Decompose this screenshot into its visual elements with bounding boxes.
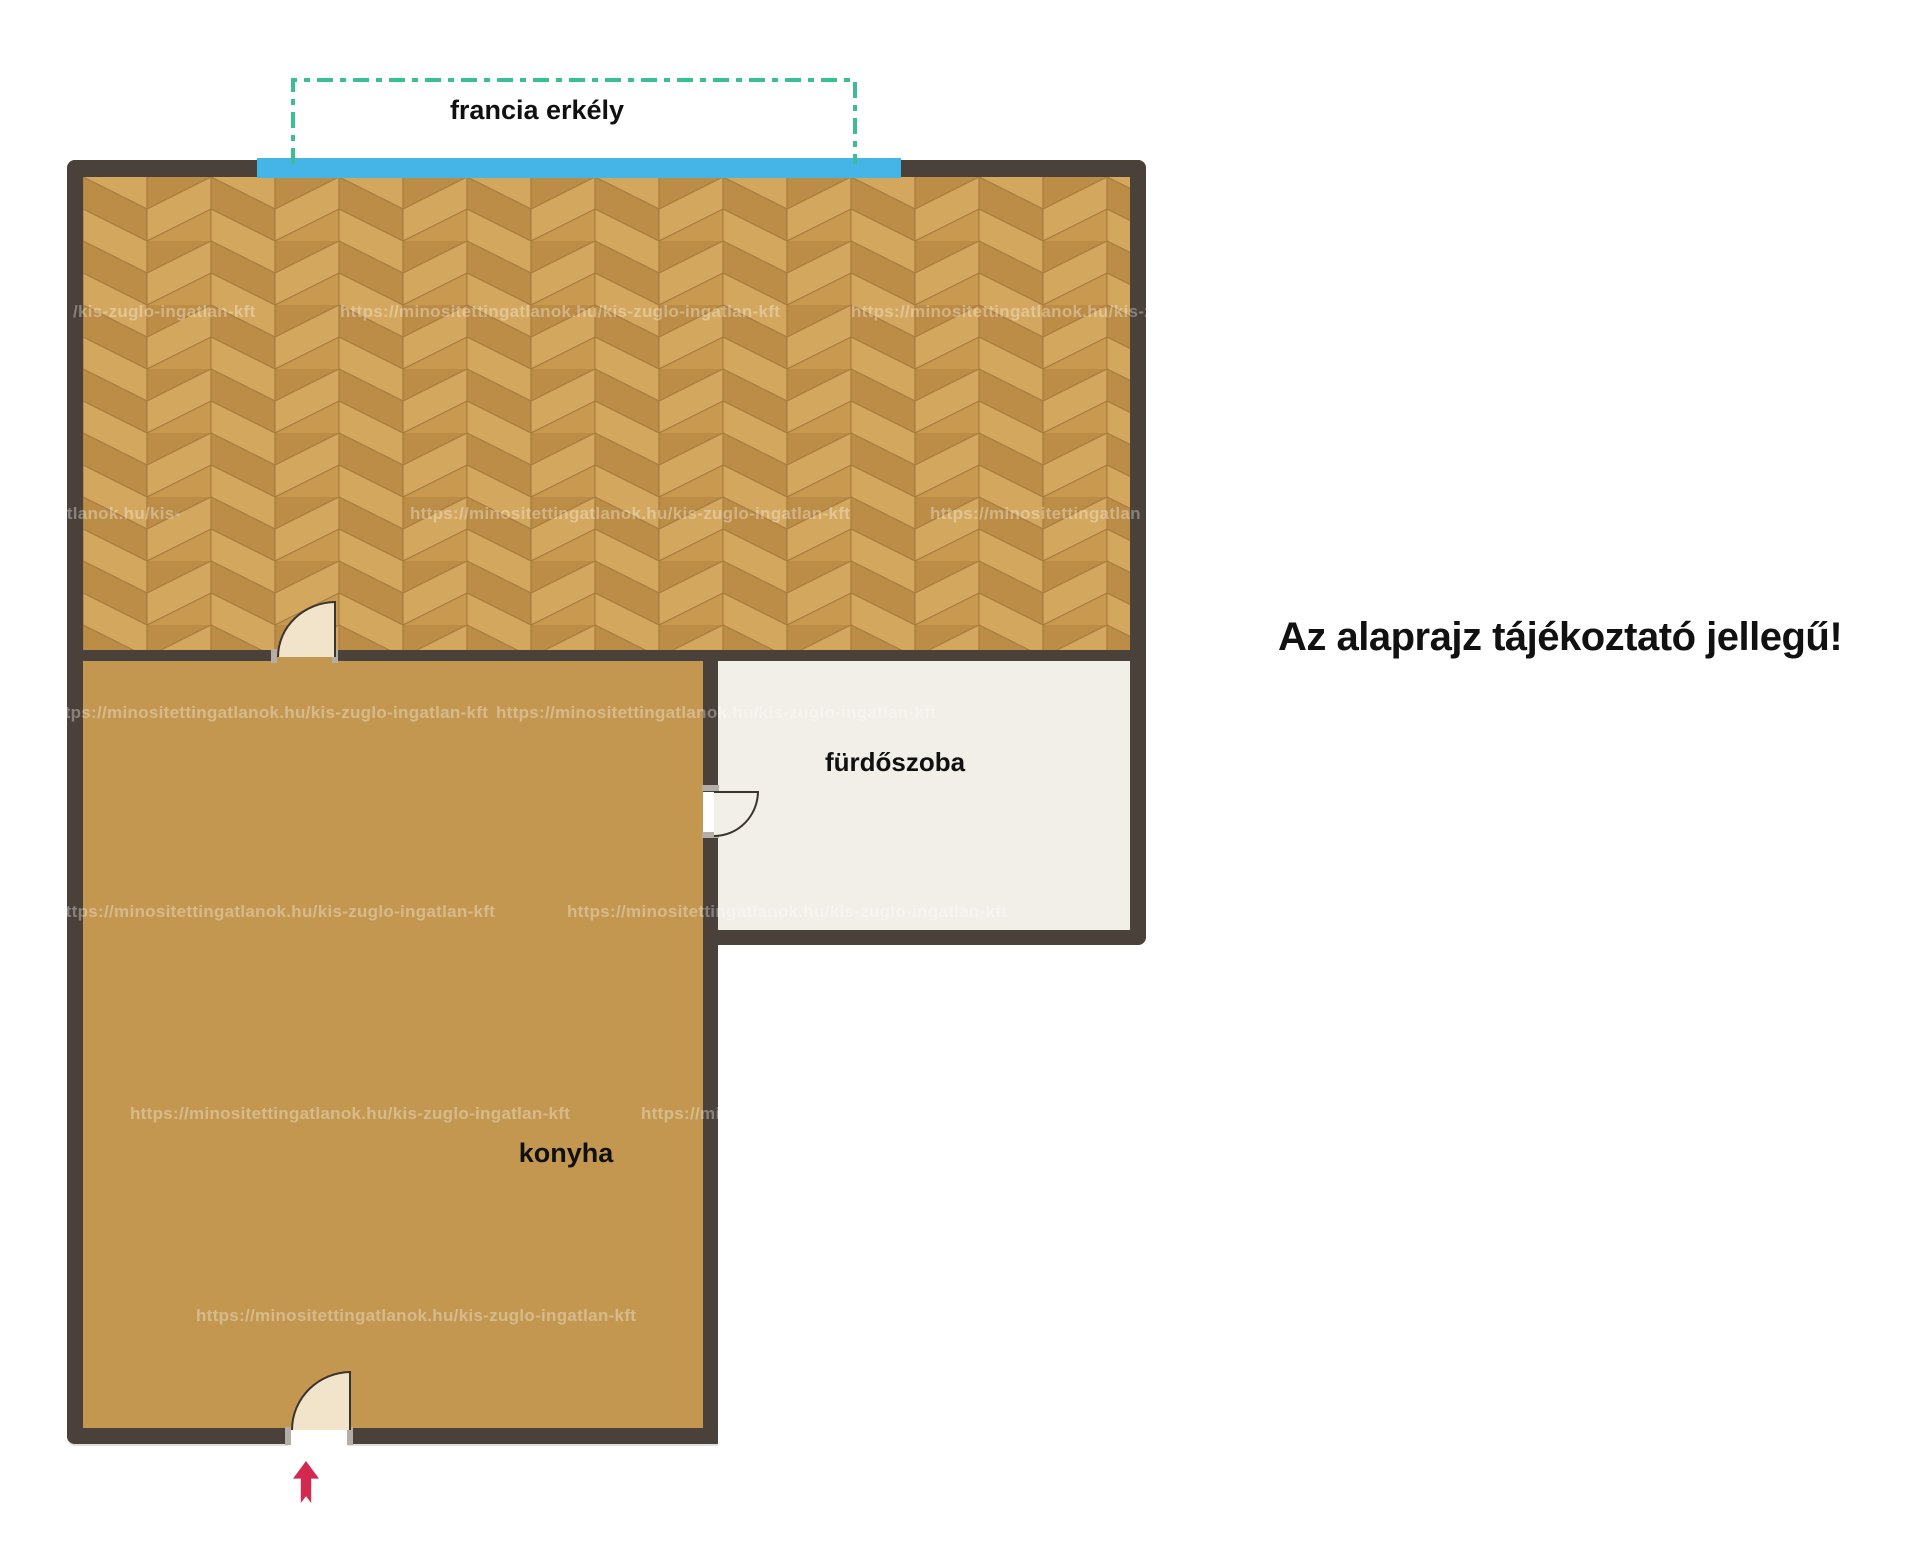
herringbone-parquet-pattern [83,177,1130,650]
wall-kitchen-bottom [348,1428,718,1444]
wall-interior-horizontal [83,650,277,661]
wall-bathroom-bottom [703,930,1146,945]
wall-right [1130,160,1146,945]
floor-plan-canvas: /kis-zuglo-ingatlan-kfthttps://minositet… [0,0,1920,1555]
entry-arrow-icon [293,1461,319,1503]
wall-left [67,160,83,1444]
label-bathroom: fürdőszoba [775,747,1015,778]
wall-kitchen-bottom [67,1428,288,1444]
wall-interior-horizontal [332,650,1130,661]
wall-kitchen-right [703,832,718,1444]
disclaimer-text: Az alaprajz tájékoztató jellegű! [1278,615,1842,660]
room-bathroom-floor [718,661,1130,930]
room-living-parquet-floor [83,177,1130,650]
label-kitchen: konyha [466,1138,666,1169]
room-kitchen-floor [83,650,703,1428]
wall-kitchen-bathroom [703,650,718,792]
label-french-balcony: francia erkély [407,95,667,126]
